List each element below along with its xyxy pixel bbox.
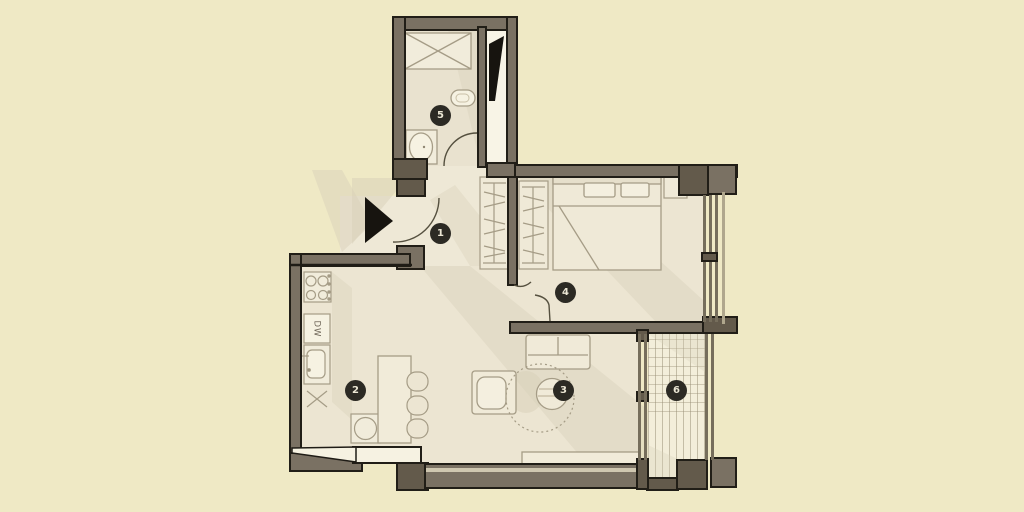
wall-bathroom-top — [392, 16, 518, 31]
dishwasher-label: DW — [303, 316, 331, 343]
wall-kitchen-left — [289, 253, 302, 471]
wall-block-entry-corner — [396, 178, 426, 197]
armchair — [472, 371, 516, 414]
shaft-void-wedge — [489, 36, 504, 101]
kitchen-island — [378, 356, 411, 443]
appliance-x-mark — [307, 391, 327, 407]
bedroom-window-mullion — [701, 252, 718, 262]
balcony-glazing-right2 — [711, 334, 714, 460]
room-label-kitchen: 2 — [345, 380, 366, 401]
wardrobe-bedroom — [519, 181, 548, 269]
room-label-living: 3 — [553, 380, 574, 401]
kitchen-sink — [302, 345, 330, 384]
double-bed — [553, 177, 661, 270]
toilet — [451, 90, 475, 106]
wall-shaft-left — [477, 26, 487, 168]
room-label-entry: 1 — [430, 223, 451, 244]
balcony-glazing-left — [638, 334, 641, 460]
room-label-bathroom: 5 — [430, 105, 451, 126]
room-label-text: 4 — [562, 287, 569, 298]
wall-block-se-bedroom — [702, 316, 738, 334]
wall-bathroom-left — [392, 16, 406, 168]
column-bedroom-ne — [678, 164, 709, 196]
living-window-glass — [426, 468, 645, 472]
floor-plan-canvas: 1 2 3 4 5 6 DW — [0, 0, 1024, 512]
pillow — [584, 183, 615, 197]
shower-tray — [405, 33, 471, 69]
wardrobe-hall — [480, 177, 509, 269]
room-label-text: 5 — [437, 110, 444, 121]
bar-stools — [407, 372, 428, 438]
washing-machine — [351, 414, 380, 443]
stove — [304, 272, 331, 302]
wall-shaft-right — [506, 16, 518, 170]
wall-bedroom-divider — [507, 176, 518, 286]
wall-block-balcony-s — [676, 459, 708, 490]
kitchen-window-sill — [352, 446, 422, 464]
dishwasher-label-text: DW — [312, 321, 322, 338]
room-label-balcony: 6 — [666, 380, 687, 401]
divider-balcony-bottom-block — [636, 458, 649, 490]
room-label-text: 1 — [437, 228, 444, 239]
wall-block-balcony-se — [710, 457, 737, 488]
wall-block-bathroom-corner — [392, 158, 428, 180]
balcony-glazing-right — [705, 334, 708, 460]
balcony-glazing-left2 — [644, 334, 647, 460]
wall-block-ne — [707, 164, 737, 195]
room-label-text: 2 — [352, 385, 359, 396]
room-label-text: 3 — [560, 385, 567, 396]
wall-kitchen-top — [291, 253, 411, 267]
bedroom-window-sill — [722, 192, 725, 324]
wall-balcony-bottom — [646, 477, 679, 491]
room-label-bedroom: 4 — [555, 282, 576, 303]
wall-living-bottom-window — [424, 463, 647, 489]
pillow — [621, 183, 649, 197]
room-label-text: 6 — [673, 385, 680, 396]
